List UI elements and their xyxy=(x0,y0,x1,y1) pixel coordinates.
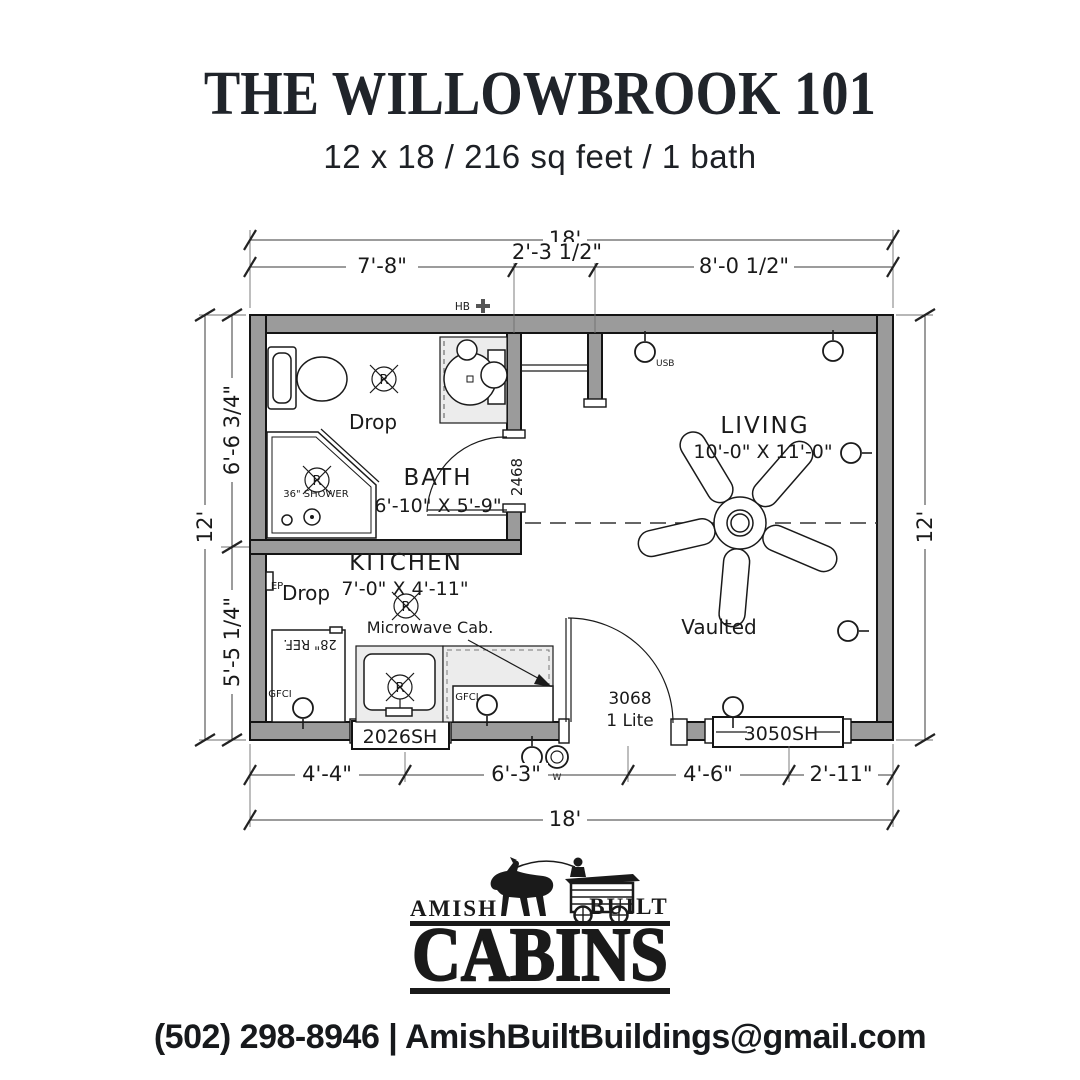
r-symbol-label: R xyxy=(401,600,410,615)
closet-shelf xyxy=(521,365,588,371)
r-symbol-label: R xyxy=(312,474,321,489)
kitchen-drop-label: Drop xyxy=(282,581,330,605)
bath-door-label: 2468 xyxy=(508,458,526,496)
contact-line: (502) 298-8946 | AmishBuiltBuildings@gma… xyxy=(0,1018,1080,1057)
gfci-label: GFCI xyxy=(268,689,291,700)
dim-bottom-seg4: 2'-11" xyxy=(809,762,872,786)
dim-left-overall: 12' xyxy=(193,511,217,544)
recessed-light-sink: R xyxy=(386,673,414,701)
dim-top-seg2: 2'-3 1/2" xyxy=(512,240,602,264)
logo-rule-bottom xyxy=(410,988,670,994)
dim-left-seg2: 5'-5 1/4" xyxy=(220,597,244,687)
living-size: 10'-0" X 11'-0" xyxy=(693,441,832,463)
bath-size: 6'-10" X 5'-9" xyxy=(374,495,501,517)
dim-right: 12' xyxy=(913,309,937,746)
front-door-model: 3068 xyxy=(608,689,651,709)
bath-drop-label: Drop xyxy=(349,410,397,434)
kitchen-label: KITCHEN xyxy=(349,550,463,576)
r-symbol-label: R xyxy=(379,373,388,388)
recessed-light-kitchen: R xyxy=(392,592,420,620)
dim-left-seg1: 6'-6 3/4" xyxy=(220,385,244,475)
dim-top: 18' 7'-8" 2'-3 1/2" 8'-0 1/2" xyxy=(244,227,899,278)
dim-bottom-seg2: 6'-3" xyxy=(491,762,541,786)
dim-bottom: 4'-4" 6'-3" 4'-6" 2'-11" 18' xyxy=(244,762,899,831)
microwave-label: Microwave Cab. xyxy=(367,618,494,637)
outlet xyxy=(841,443,872,463)
toilet xyxy=(268,347,347,409)
dim-bottom-seg1: 4'-4" xyxy=(302,762,352,786)
dim-right-overall: 12' xyxy=(913,511,937,544)
dim-bottom-seg3: 4'-6" xyxy=(683,762,733,786)
brand-main-label: CABINS xyxy=(412,913,668,997)
living-window-label: 3050SH xyxy=(744,723,819,745)
outlet xyxy=(838,621,869,641)
page-title: THE WILLOWBROOK 101 xyxy=(0,62,1080,126)
outlet xyxy=(823,330,843,361)
usb-label: USB xyxy=(656,359,674,369)
gfci-label: GFCI xyxy=(455,692,478,703)
ep-label: EP xyxy=(271,581,283,592)
living-label: LIVING xyxy=(720,413,809,439)
dim-top-seg3: 8'-0 1/2" xyxy=(699,254,789,278)
page-subtitle: 12 x 18 / 216 sq feet / 1 bath xyxy=(0,138,1080,176)
floor-plan: 2026SH 3050SH 3068 1 Lite 2468 xyxy=(140,215,980,845)
dim-bottom-overall: 18' xyxy=(549,807,582,831)
dim-left: 12' 6'-6 3/4" 5'-5 1/4" xyxy=(193,309,244,746)
front-door: 3068 1 Lite xyxy=(566,618,673,731)
recessed-light-bath: R xyxy=(370,365,398,393)
page-title-text: THE WILLOWBROOK 101 xyxy=(204,62,876,126)
vaulted-label: Vaulted xyxy=(681,615,756,639)
flyer: THE WILLOWBROOK 101 12 x 18 / 216 sq fee… xyxy=(0,0,1080,1080)
fridge-label: 28" REF. xyxy=(283,636,336,651)
usb-outlet: USB xyxy=(635,331,674,369)
vanity-sink xyxy=(440,337,507,423)
kitchen-window-label: 2026SH xyxy=(363,726,438,748)
brand-logo: AMISH BUILT CABINS xyxy=(395,854,685,1000)
front-door-type: 1 Lite xyxy=(606,711,654,731)
dim-top-seg1: 7'-8" xyxy=(357,254,407,278)
hb-label: HB xyxy=(455,301,470,313)
hose-bib: HB xyxy=(455,299,490,313)
bath-label: BATH xyxy=(403,465,472,491)
kitchen-window: 2026SH xyxy=(352,721,449,749)
recessed-light-shower: R xyxy=(303,466,331,494)
r-symbol-label: R xyxy=(395,681,404,696)
